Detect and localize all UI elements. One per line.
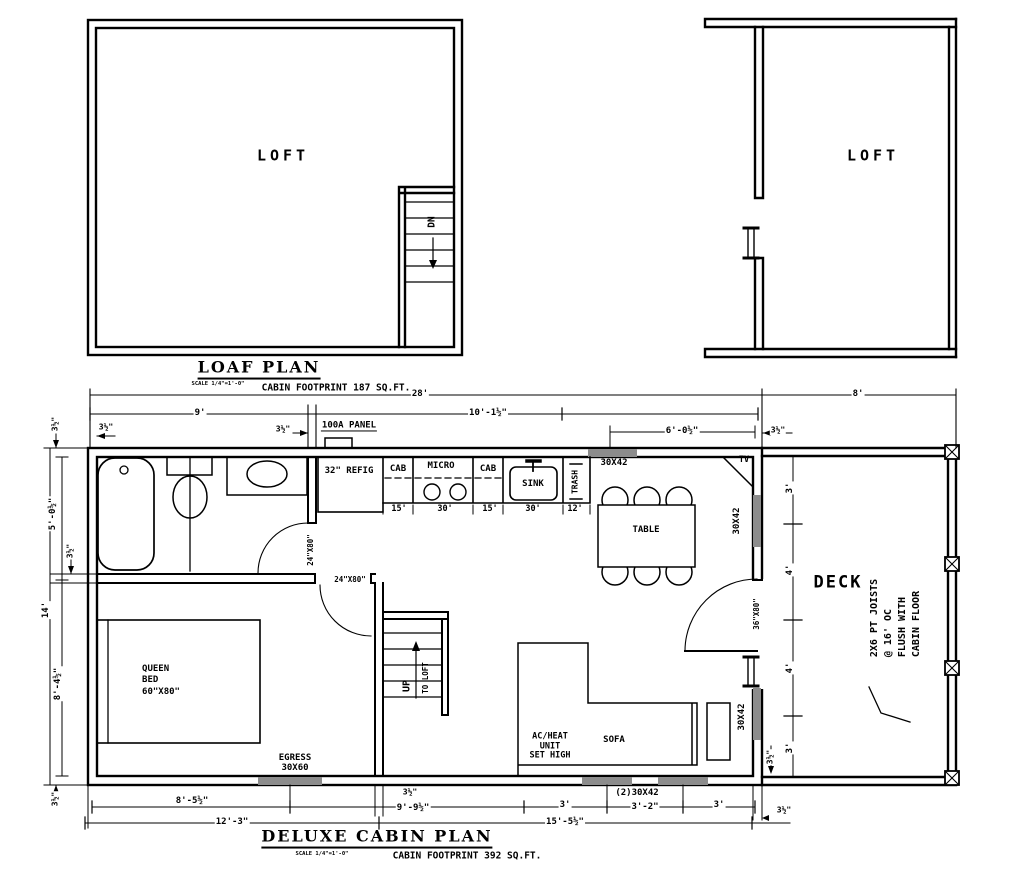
panel-label: 100A PANEL bbox=[321, 420, 377, 431]
loaf-plan-footprint: CABIN FOOTPRINT 187 SQ.FT. bbox=[262, 384, 411, 395]
dim-deck-3h: 3½" bbox=[767, 749, 776, 765]
dim-9: 9' bbox=[194, 408, 207, 418]
deluxe-plan-title: DELUXE CABIN PLAN bbox=[261, 828, 492, 849]
deck-door-36x80 bbox=[685, 579, 758, 686]
window-30x42-right2-label: 30X42 bbox=[737, 702, 747, 731]
sofa-label: SOFA bbox=[603, 735, 625, 745]
deck-joist-note: 2X6 PT JOISTS @ 16' OC FLUSH WITH CABIN … bbox=[868, 579, 924, 657]
dim-3h-left-c: 3½" bbox=[52, 791, 61, 807]
loft2-walls bbox=[705, 19, 956, 357]
loft2-room-label: LOFT bbox=[847, 148, 899, 165]
deck-dim-line bbox=[768, 456, 802, 777]
door-24x80-bath-label: 24"X80" bbox=[307, 533, 315, 567]
loaf-plan-scale: SCALE 1/4"=1'-0" bbox=[192, 381, 245, 387]
dim-micro-30: 30' bbox=[437, 505, 452, 515]
dim-trash-12: 12' bbox=[567, 505, 582, 515]
dim-9-9h: 9'-9½" bbox=[396, 803, 431, 813]
dim-3h-stair: 3½" bbox=[402, 789, 418, 798]
door-24x80-bedroom-label: 24"X80" bbox=[333, 576, 367, 584]
dim-sink-30: 30' bbox=[525, 505, 540, 515]
dim-deck-3-bottom: 3' bbox=[785, 742, 795, 755]
loaf-plan-title: LOAF PLAN bbox=[198, 359, 321, 380]
cabin-exterior-walls bbox=[88, 448, 762, 785]
microwave-label: MICRO bbox=[427, 461, 454, 471]
dim-deck-8: 8' bbox=[852, 389, 865, 399]
sink-label: SINK bbox=[522, 479, 544, 489]
bathroom-fixtures bbox=[98, 457, 307, 571]
dim-lines-bottom bbox=[85, 785, 790, 829]
dim-deck-4-bottom: 4' bbox=[785, 662, 795, 675]
queen-bed-label: QUEEN BED 60"X80" bbox=[142, 664, 180, 698]
joist-note-leader bbox=[869, 687, 910, 722]
deck-rails bbox=[762, 448, 956, 785]
blueprint-canvas: LOFTDNLOAF PLANSCALE 1/4"=1'-0"CABIN FOO… bbox=[0, 0, 1033, 885]
cabinet-label-1: CAB bbox=[390, 464, 406, 474]
loft-dn-arrow bbox=[429, 238, 437, 269]
dim-10-1h: 10'-1½" bbox=[468, 408, 508, 418]
dim-cab1-15: 15' bbox=[391, 505, 406, 515]
deluxe-plan-footprint: CABIN FOOTPRINT 392 SQ.FT. bbox=[393, 852, 542, 863]
dim-deck-3-top: 3' bbox=[785, 482, 795, 495]
table-label: TABLE bbox=[631, 525, 660, 535]
window-30x42-top-label: 30X42 bbox=[600, 458, 627, 468]
stairs-up-arrow bbox=[412, 641, 420, 698]
tv-label: TV bbox=[739, 456, 749, 466]
dim-14: 14' bbox=[41, 601, 51, 619]
cabinet-label-2: CAB bbox=[480, 464, 496, 474]
dim-3-a: 3' bbox=[559, 800, 572, 810]
trash-label: TRASH bbox=[572, 470, 581, 494]
loft1-room-label: LOFT bbox=[257, 148, 309, 165]
dim-3h-panel: 3½" bbox=[275, 426, 291, 435]
dim-3-2: 3'-2" bbox=[630, 802, 659, 812]
dim-5-0h: 5'-0½" bbox=[48, 497, 58, 532]
dim-3-b: 3' bbox=[713, 800, 726, 810]
door-opening-mask bbox=[750, 579, 764, 689]
loft2-window-symbol bbox=[744, 228, 758, 258]
dining-set bbox=[598, 487, 695, 585]
dim-8-4h: 8'-4½" bbox=[53, 667, 63, 702]
dim-15-5h: 15'-5½" bbox=[545, 817, 585, 827]
dim-3h-top-left: 3½" bbox=[98, 424, 114, 433]
dim-12-3: 12'-3" bbox=[215, 817, 250, 827]
dim-3h-top-right: 3½" bbox=[770, 427, 786, 436]
deluxe-plan-scale: SCALE 1/4"=1'-0" bbox=[296, 851, 349, 857]
stairs-up-label: UP bbox=[401, 680, 412, 692]
loft-plan-walls bbox=[88, 20, 462, 355]
dim-6-0h: 6'-0½" bbox=[665, 426, 700, 436]
dim-3h-left-a: 3½" bbox=[52, 416, 61, 432]
dim-deck-4-top: 4' bbox=[785, 564, 795, 577]
dim-8-5h: 8'-5½" bbox=[175, 796, 210, 806]
loft1-dn-label: DN bbox=[428, 216, 439, 227]
deck-label: DECK bbox=[814, 573, 863, 592]
dim-3h-left-b: 3½" bbox=[67, 543, 76, 559]
window-30x42-right1-label: 30X42 bbox=[732, 506, 742, 535]
loft-stair-treads bbox=[405, 202, 454, 282]
refrigerator-label: 32" REFIG bbox=[325, 466, 374, 476]
floorplan-linework bbox=[0, 0, 1033, 885]
window-2-30x42-label: (2)30X42 bbox=[614, 788, 659, 798]
door-36x80-label: 36"X80" bbox=[753, 597, 761, 631]
dim-cab2-15: 15' bbox=[482, 505, 497, 515]
dim-3h-bottom-right: 3½" bbox=[776, 807, 792, 816]
stairs-to-loft-label: TO LOFT bbox=[422, 662, 430, 694]
egress-window-label: EGRESS 30X60 bbox=[279, 753, 312, 773]
dim-overall-28: 28' bbox=[411, 389, 429, 399]
dim-lines-top bbox=[90, 389, 956, 456]
ac-heat-note: AC/HEAT UNIT SET HIGH bbox=[530, 733, 571, 762]
